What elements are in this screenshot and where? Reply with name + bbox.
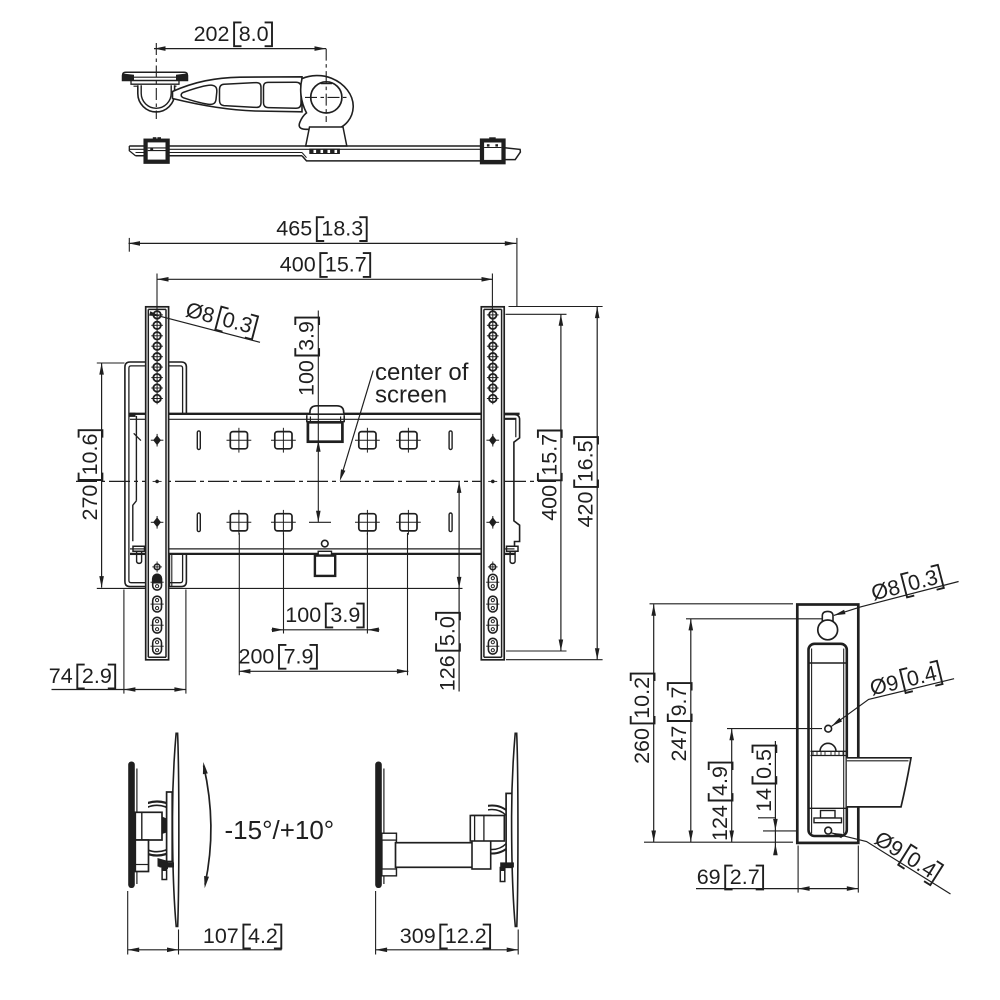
svg-text:247: 247 bbox=[667, 726, 691, 762]
svg-text:4.9: 4.9 bbox=[708, 766, 732, 796]
svg-text:10.2: 10.2 bbox=[630, 677, 654, 719]
svg-text:15.7: 15.7 bbox=[325, 253, 367, 277]
svg-text:4.2: 4.2 bbox=[248, 924, 278, 948]
svg-text:15.7: 15.7 bbox=[537, 434, 561, 476]
svg-text:12.2: 12.2 bbox=[445, 924, 487, 948]
svg-text:2.7: 2.7 bbox=[730, 865, 760, 889]
svg-text:270: 270 bbox=[78, 485, 102, 521]
svg-text:2.9: 2.9 bbox=[82, 664, 112, 688]
svg-text:3.9: 3.9 bbox=[330, 603, 360, 627]
svg-text:260: 260 bbox=[630, 728, 654, 764]
svg-text:100: 100 bbox=[295, 360, 319, 396]
svg-text:18.3: 18.3 bbox=[321, 217, 363, 241]
svg-text:screen: screen bbox=[375, 382, 447, 409]
svg-text:200: 200 bbox=[239, 644, 275, 668]
svg-text:69: 69 bbox=[697, 865, 721, 889]
svg-text:124: 124 bbox=[708, 805, 732, 841]
svg-text:10.6: 10.6 bbox=[78, 434, 102, 476]
svg-text:74: 74 bbox=[49, 664, 73, 688]
svg-text:100: 100 bbox=[285, 603, 321, 627]
svg-text:9.7: 9.7 bbox=[667, 687, 691, 717]
svg-text:107: 107 bbox=[203, 924, 239, 948]
svg-text:-15°/+10°: -15°/+10° bbox=[225, 815, 335, 845]
svg-text:465: 465 bbox=[276, 217, 312, 241]
svg-text:5.0: 5.0 bbox=[436, 616, 460, 646]
svg-text:8.0: 8.0 bbox=[239, 22, 269, 46]
svg-text:0.5: 0.5 bbox=[752, 749, 776, 779]
svg-text:126: 126 bbox=[436, 655, 460, 691]
svg-text:3.9: 3.9 bbox=[295, 321, 319, 351]
svg-text:14: 14 bbox=[752, 788, 776, 812]
svg-text:202: 202 bbox=[194, 22, 230, 46]
svg-text:7.9: 7.9 bbox=[284, 644, 314, 668]
svg-text:309: 309 bbox=[400, 924, 436, 948]
svg-text:16.5: 16.5 bbox=[574, 440, 598, 482]
svg-text:400: 400 bbox=[537, 485, 561, 521]
svg-text:400: 400 bbox=[280, 253, 316, 277]
svg-text:420: 420 bbox=[574, 491, 598, 527]
